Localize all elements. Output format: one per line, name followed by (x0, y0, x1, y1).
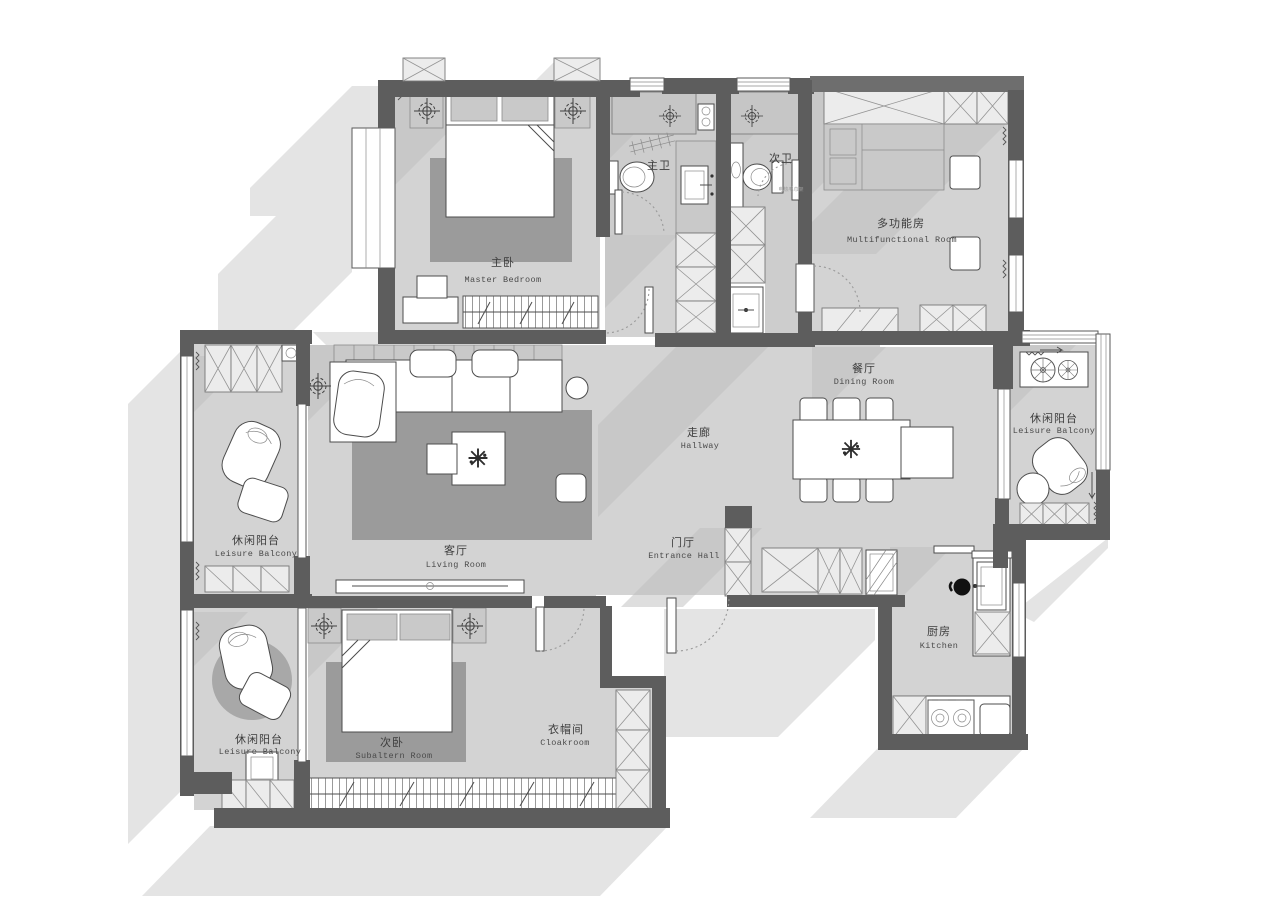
window (737, 78, 790, 91)
vanity (676, 141, 716, 233)
svg-text:Entrance Hall: Entrance Hall (648, 551, 720, 561)
svg-text:餐厅: 餐厅 (852, 361, 876, 375)
tv-bench (336, 580, 524, 593)
balcony-slider (298, 608, 306, 762)
annotation-towel-rack: 电热毛巾架 (778, 186, 803, 193)
low-window-bench (222, 780, 294, 810)
balcony-window (1096, 334, 1110, 470)
toilet (743, 161, 783, 193)
counter-stove (893, 696, 1010, 738)
round-side-table (566, 377, 588, 399)
tatami-bed (824, 124, 944, 190)
svg-text:休闲阳台: 休闲阳台 (1030, 411, 1078, 425)
dining-chair (833, 398, 860, 423)
svg-text:Dining Room: Dining Room (834, 377, 895, 387)
top-fringe (403, 58, 600, 81)
nightstand-left (308, 608, 341, 643)
svg-text:Hallway: Hallway (681, 441, 720, 451)
svg-text:休闲阳台: 休闲阳台 (235, 732, 283, 746)
svg-text:多功能房: 多功能房 (877, 216, 925, 230)
nightstand-right (555, 93, 590, 128)
armchair (330, 362, 396, 442)
svg-text:Kitchen: Kitchen (920, 641, 959, 651)
tall-cabinet (866, 550, 897, 595)
double-bed (342, 610, 452, 732)
svg-text:衣帽间: 衣帽间 (548, 722, 584, 736)
cloakroom-cabinet (616, 690, 650, 810)
storage-bench (1020, 503, 1089, 525)
sideboard (901, 427, 953, 478)
label-second-bath: 次卫 (769, 151, 793, 165)
floor-plan-page: 主卧 Master Bedroom 主卫 次卫 多功能房 Multifuncti… (0, 0, 1280, 904)
side-table (427, 444, 457, 474)
long-wardrobe (306, 778, 618, 810)
svg-text:Leisure Balcony: Leisure Balcony (215, 549, 298, 559)
shoe-cabinet (725, 528, 751, 596)
svg-text:走廊: 走廊 (687, 425, 711, 439)
dining-chair (800, 477, 827, 502)
pouf (556, 474, 586, 502)
dining-chair (866, 477, 893, 502)
svg-text:主卫: 主卫 (647, 159, 671, 172)
svg-text:Master Bedroom: Master Bedroom (464, 275, 541, 285)
shower-zone (612, 92, 696, 134)
linen-cabinet (676, 233, 716, 333)
svg-text:次卫: 次卫 (769, 151, 793, 165)
low-window-bench (205, 566, 289, 592)
dining-chair (833, 477, 860, 502)
utility-cabinet (727, 207, 765, 283)
nightstand-right (453, 608, 486, 643)
plant-icon (842, 440, 860, 458)
hall-cabinet (762, 548, 862, 594)
door-opening (796, 264, 814, 312)
label-master-bath: 主卫 (647, 159, 671, 172)
double-bed (446, 92, 554, 217)
mop-sink (729, 287, 763, 333)
chair (950, 156, 980, 189)
svg-text:次卧: 次卧 (380, 735, 404, 749)
plant-icon (469, 449, 488, 468)
dining-chair (866, 398, 893, 423)
shower-zone (729, 92, 801, 134)
svg-text:Leisure Balcony: Leisure Balcony (219, 747, 302, 757)
svg-text:Subaltern Room: Subaltern Room (355, 751, 432, 761)
window (630, 78, 664, 91)
top-wardrobe (824, 88, 1008, 124)
svg-text:Cloakroom: Cloakroom (540, 738, 590, 748)
svg-text:休闲阳台: 休闲阳台 (232, 533, 280, 547)
svg-text:Leisure Balcony: Leisure Balcony (1013, 426, 1096, 436)
svg-text:客厅: 客厅 (444, 543, 468, 557)
washer-cabinet (1020, 352, 1088, 387)
svg-text:Multifunctional Room: Multifunctional Room (847, 235, 957, 245)
balcony-closet (205, 345, 282, 392)
nightstand-left (410, 93, 443, 128)
balcony-slider (298, 404, 306, 558)
bay-window (352, 128, 395, 268)
cushion (410, 350, 456, 377)
label-cloakroom: 衣帽间 Cloakroom (540, 722, 590, 748)
balcony-window (1022, 331, 1098, 343)
floor-plan-drawing: 主卧 Master Bedroom 主卫 次卫 多功能房 Multifuncti… (0, 0, 1280, 904)
stacked-washer (698, 104, 714, 130)
bedroom-dresser (463, 296, 598, 328)
svg-text:主卧: 主卧 (491, 256, 515, 269)
svg-text:门厅: 门厅 (671, 535, 695, 549)
vanity (729, 143, 743, 207)
svg-text:厨房: 厨房 (927, 625, 951, 638)
under-sink-cabinet (980, 704, 1010, 736)
cushion (472, 350, 518, 377)
svg-text:Living Room: Living Room (426, 560, 487, 570)
dining-chair (800, 398, 827, 423)
side-table (1017, 473, 1049, 505)
